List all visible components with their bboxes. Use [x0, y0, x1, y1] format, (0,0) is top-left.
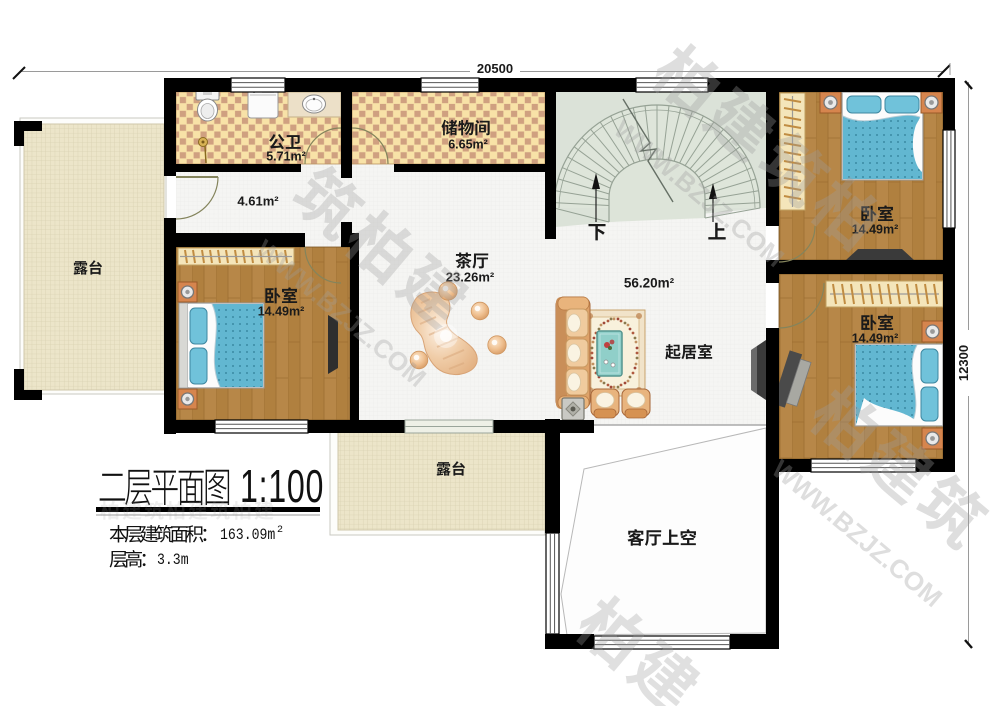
svg-text:4.61m²: 4.61m² [237, 194, 279, 209]
svg-text:1:100: 1:100 [240, 461, 324, 512]
svg-text:12300: 12300 [956, 345, 971, 381]
svg-text:163.09m: 163.09m [220, 527, 275, 544]
svg-text:20500: 20500 [477, 61, 513, 76]
svg-text:5.71m²: 5.71m² [266, 149, 306, 163]
svg-text:56.20m²: 56.20m² [624, 276, 675, 291]
svg-text:14.49m²: 14.49m² [852, 331, 899, 345]
svg-text:3.3m: 3.3m [157, 552, 189, 569]
svg-text:14.49m²: 14.49m² [258, 304, 305, 318]
svg-text:6.65m²: 6.65m² [448, 137, 488, 151]
svg-text:2: 2 [277, 525, 283, 536]
